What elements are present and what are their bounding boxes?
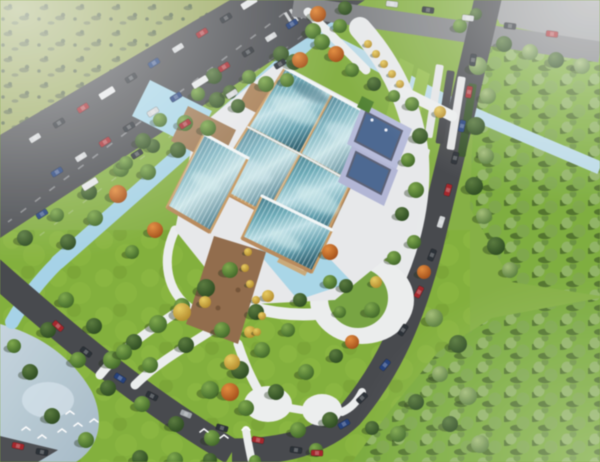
haze-overlay <box>0 0 600 462</box>
aerial-render-image <box>0 0 600 462</box>
